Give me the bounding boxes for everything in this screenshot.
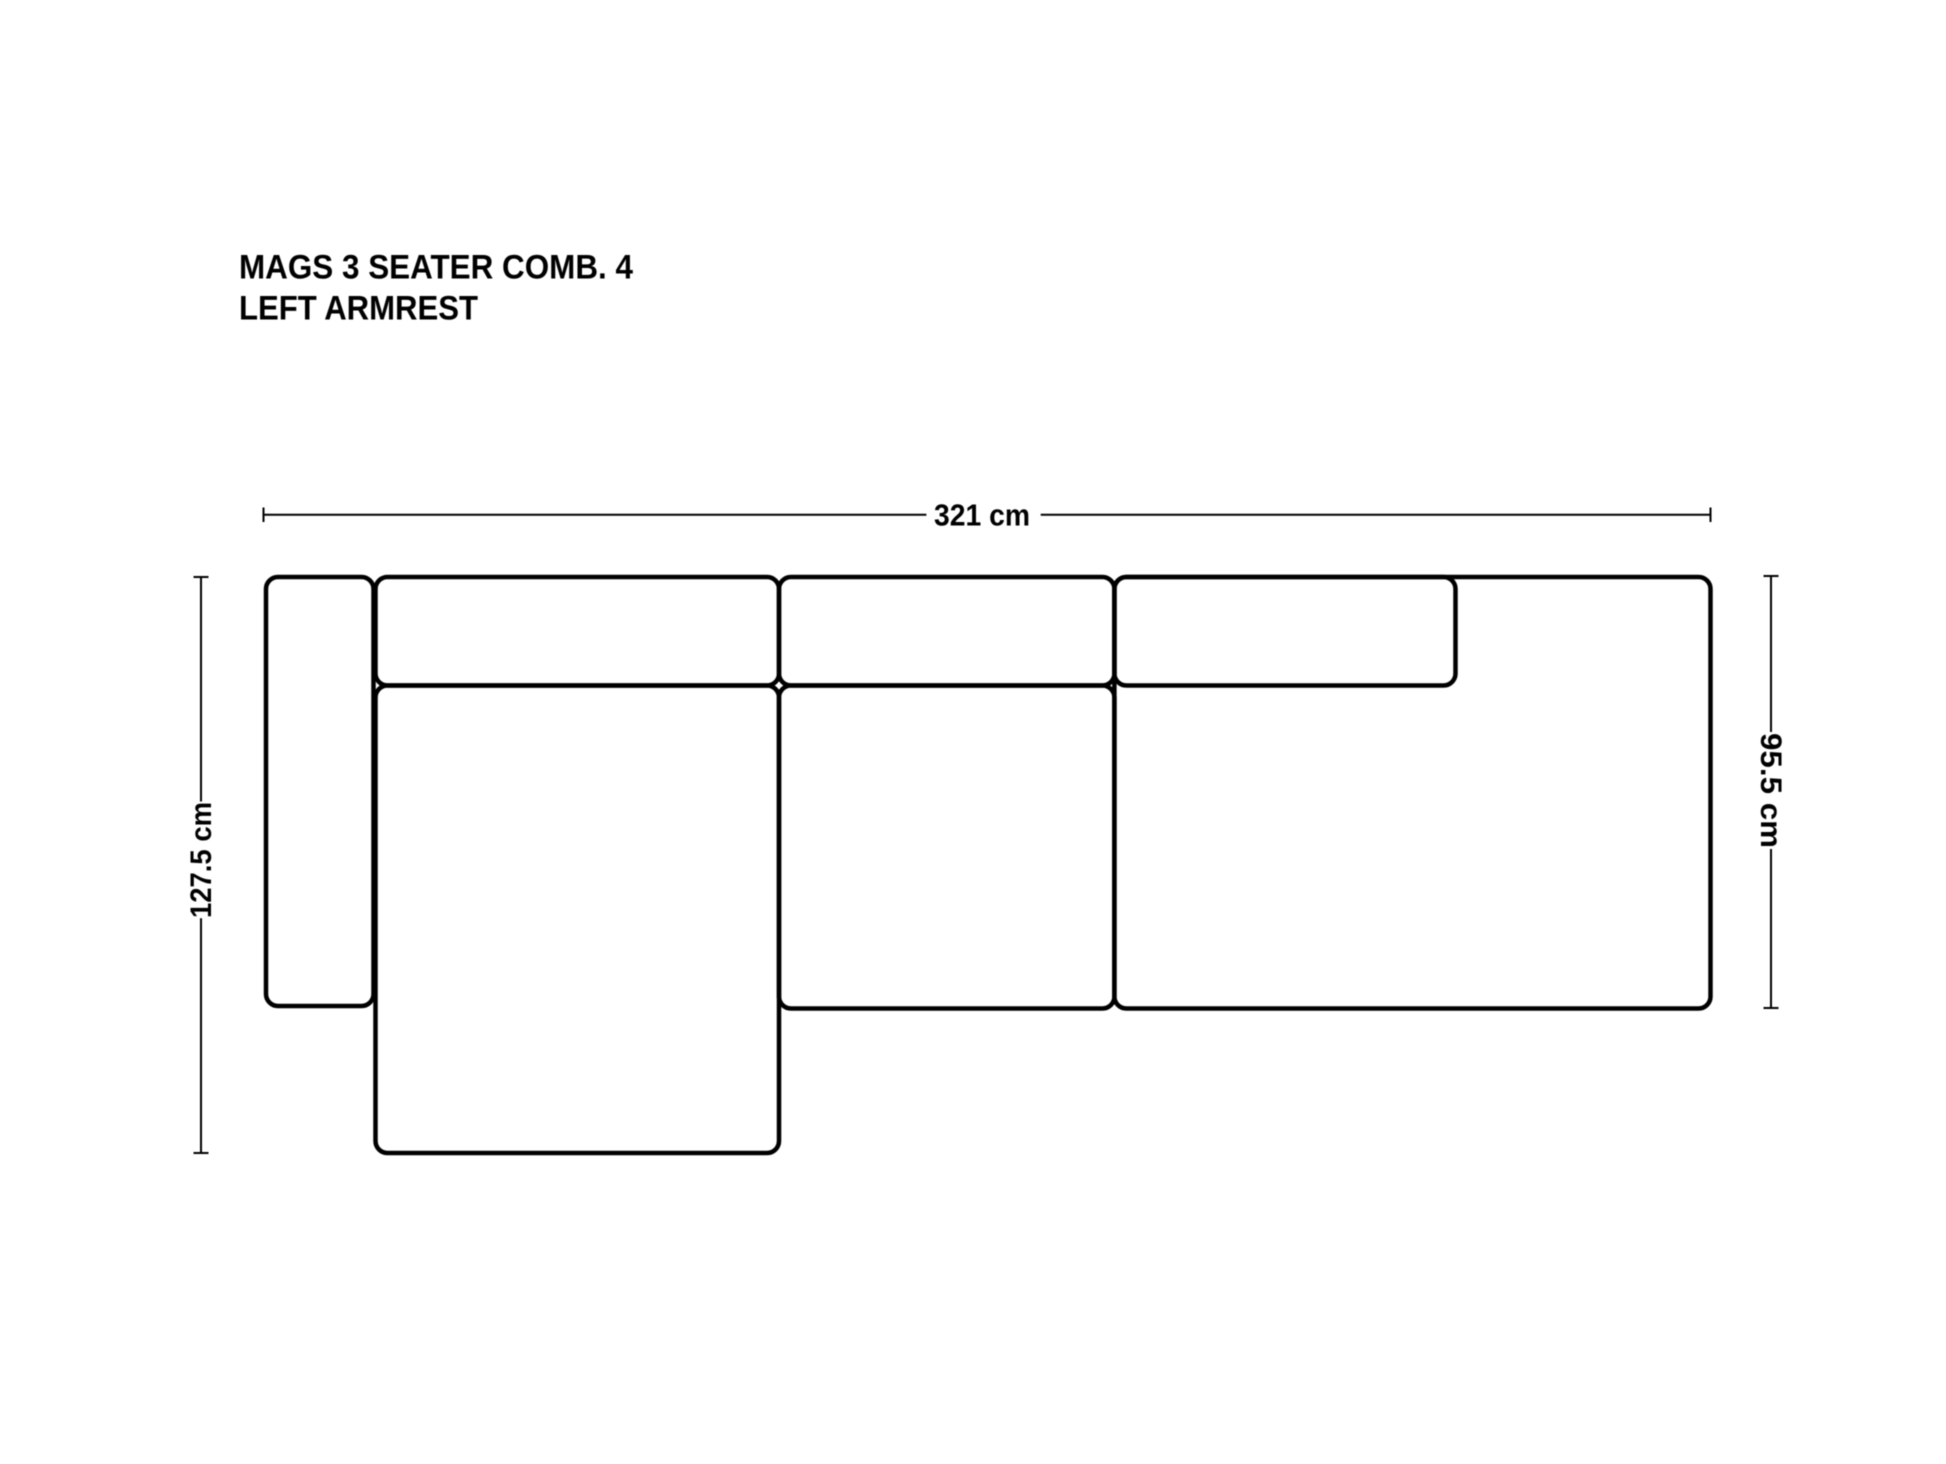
svg-text:MAGS 3 SEATER COMB. 4: MAGS 3 SEATER COMB. 4: [239, 249, 633, 287]
svg-text:127.5 cm: 127.5 cm: [185, 802, 218, 918]
svg-text:LEFT ARMREST: LEFT ARMREST: [239, 290, 478, 328]
svg-text:321 cm: 321 cm: [934, 499, 1030, 533]
svg-text:95.5 cm: 95.5 cm: [1754, 733, 1787, 848]
